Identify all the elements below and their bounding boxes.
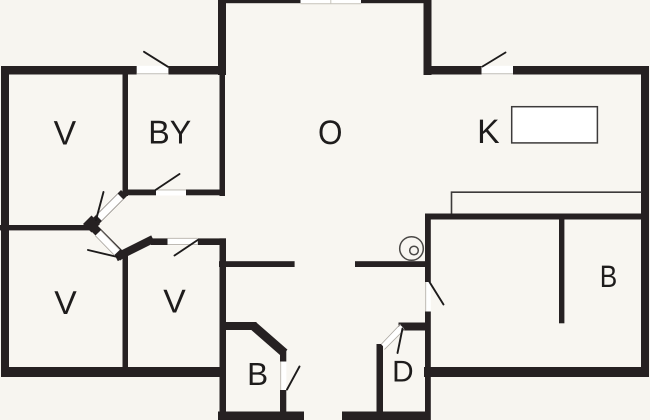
svg-text:K: K: [477, 113, 500, 151]
svg-text:V: V: [54, 284, 77, 321]
svg-text:V: V: [163, 282, 186, 319]
svg-text:O: O: [318, 114, 343, 152]
svg-text:B: B: [247, 356, 268, 392]
svg-text:BY: BY: [148, 114, 191, 151]
svg-text:D: D: [392, 355, 414, 388]
svg-text:B: B: [600, 259, 618, 294]
svg-text:V: V: [54, 114, 77, 152]
